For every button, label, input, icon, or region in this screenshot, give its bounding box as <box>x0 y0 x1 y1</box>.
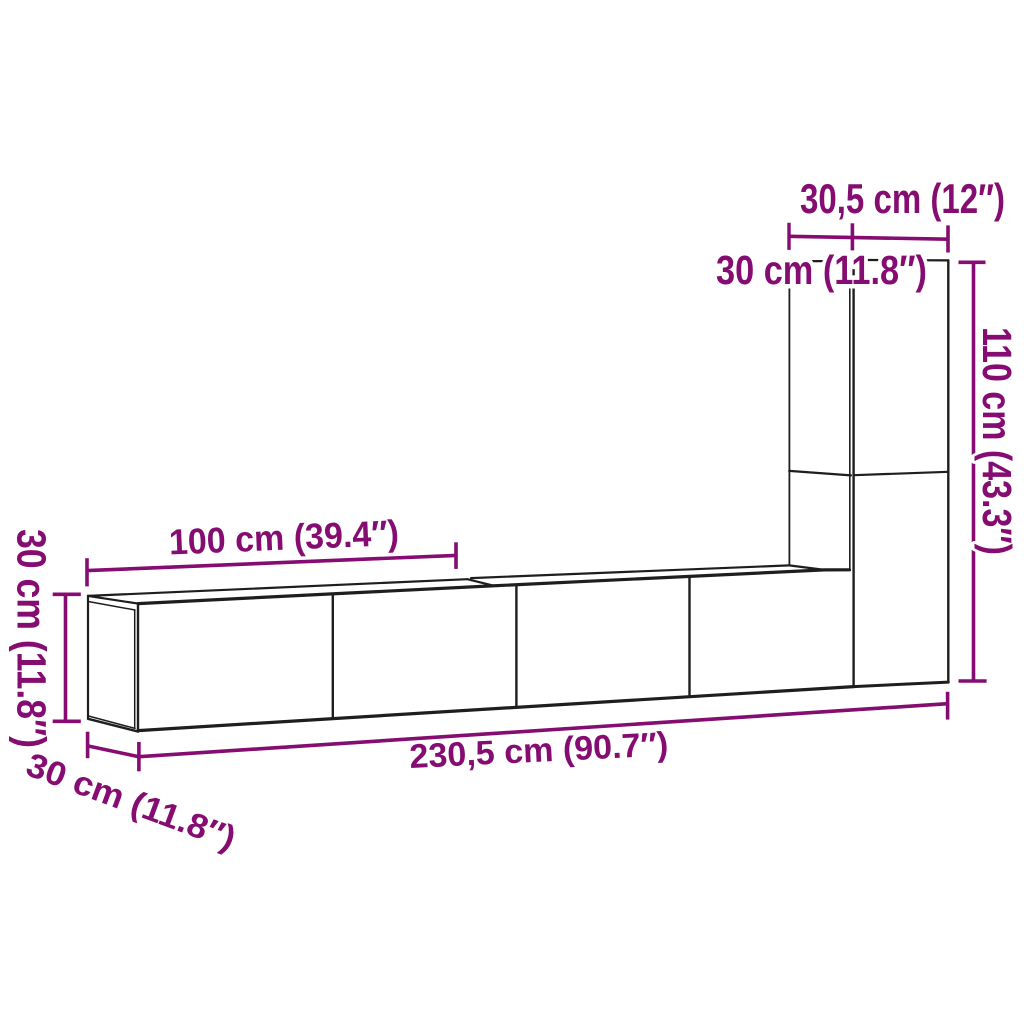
svg-text:30,5 cm (12″): 30,5 cm (12″) <box>800 175 1005 222</box>
svg-text:30 cm (11.8″): 30 cm (11.8″) <box>9 529 55 748</box>
svg-text:110 cm (43.3″): 110 cm (43.3″) <box>974 327 1020 555</box>
svg-text:30 cm (11.8″): 30 cm (11.8″) <box>716 247 927 293</box>
